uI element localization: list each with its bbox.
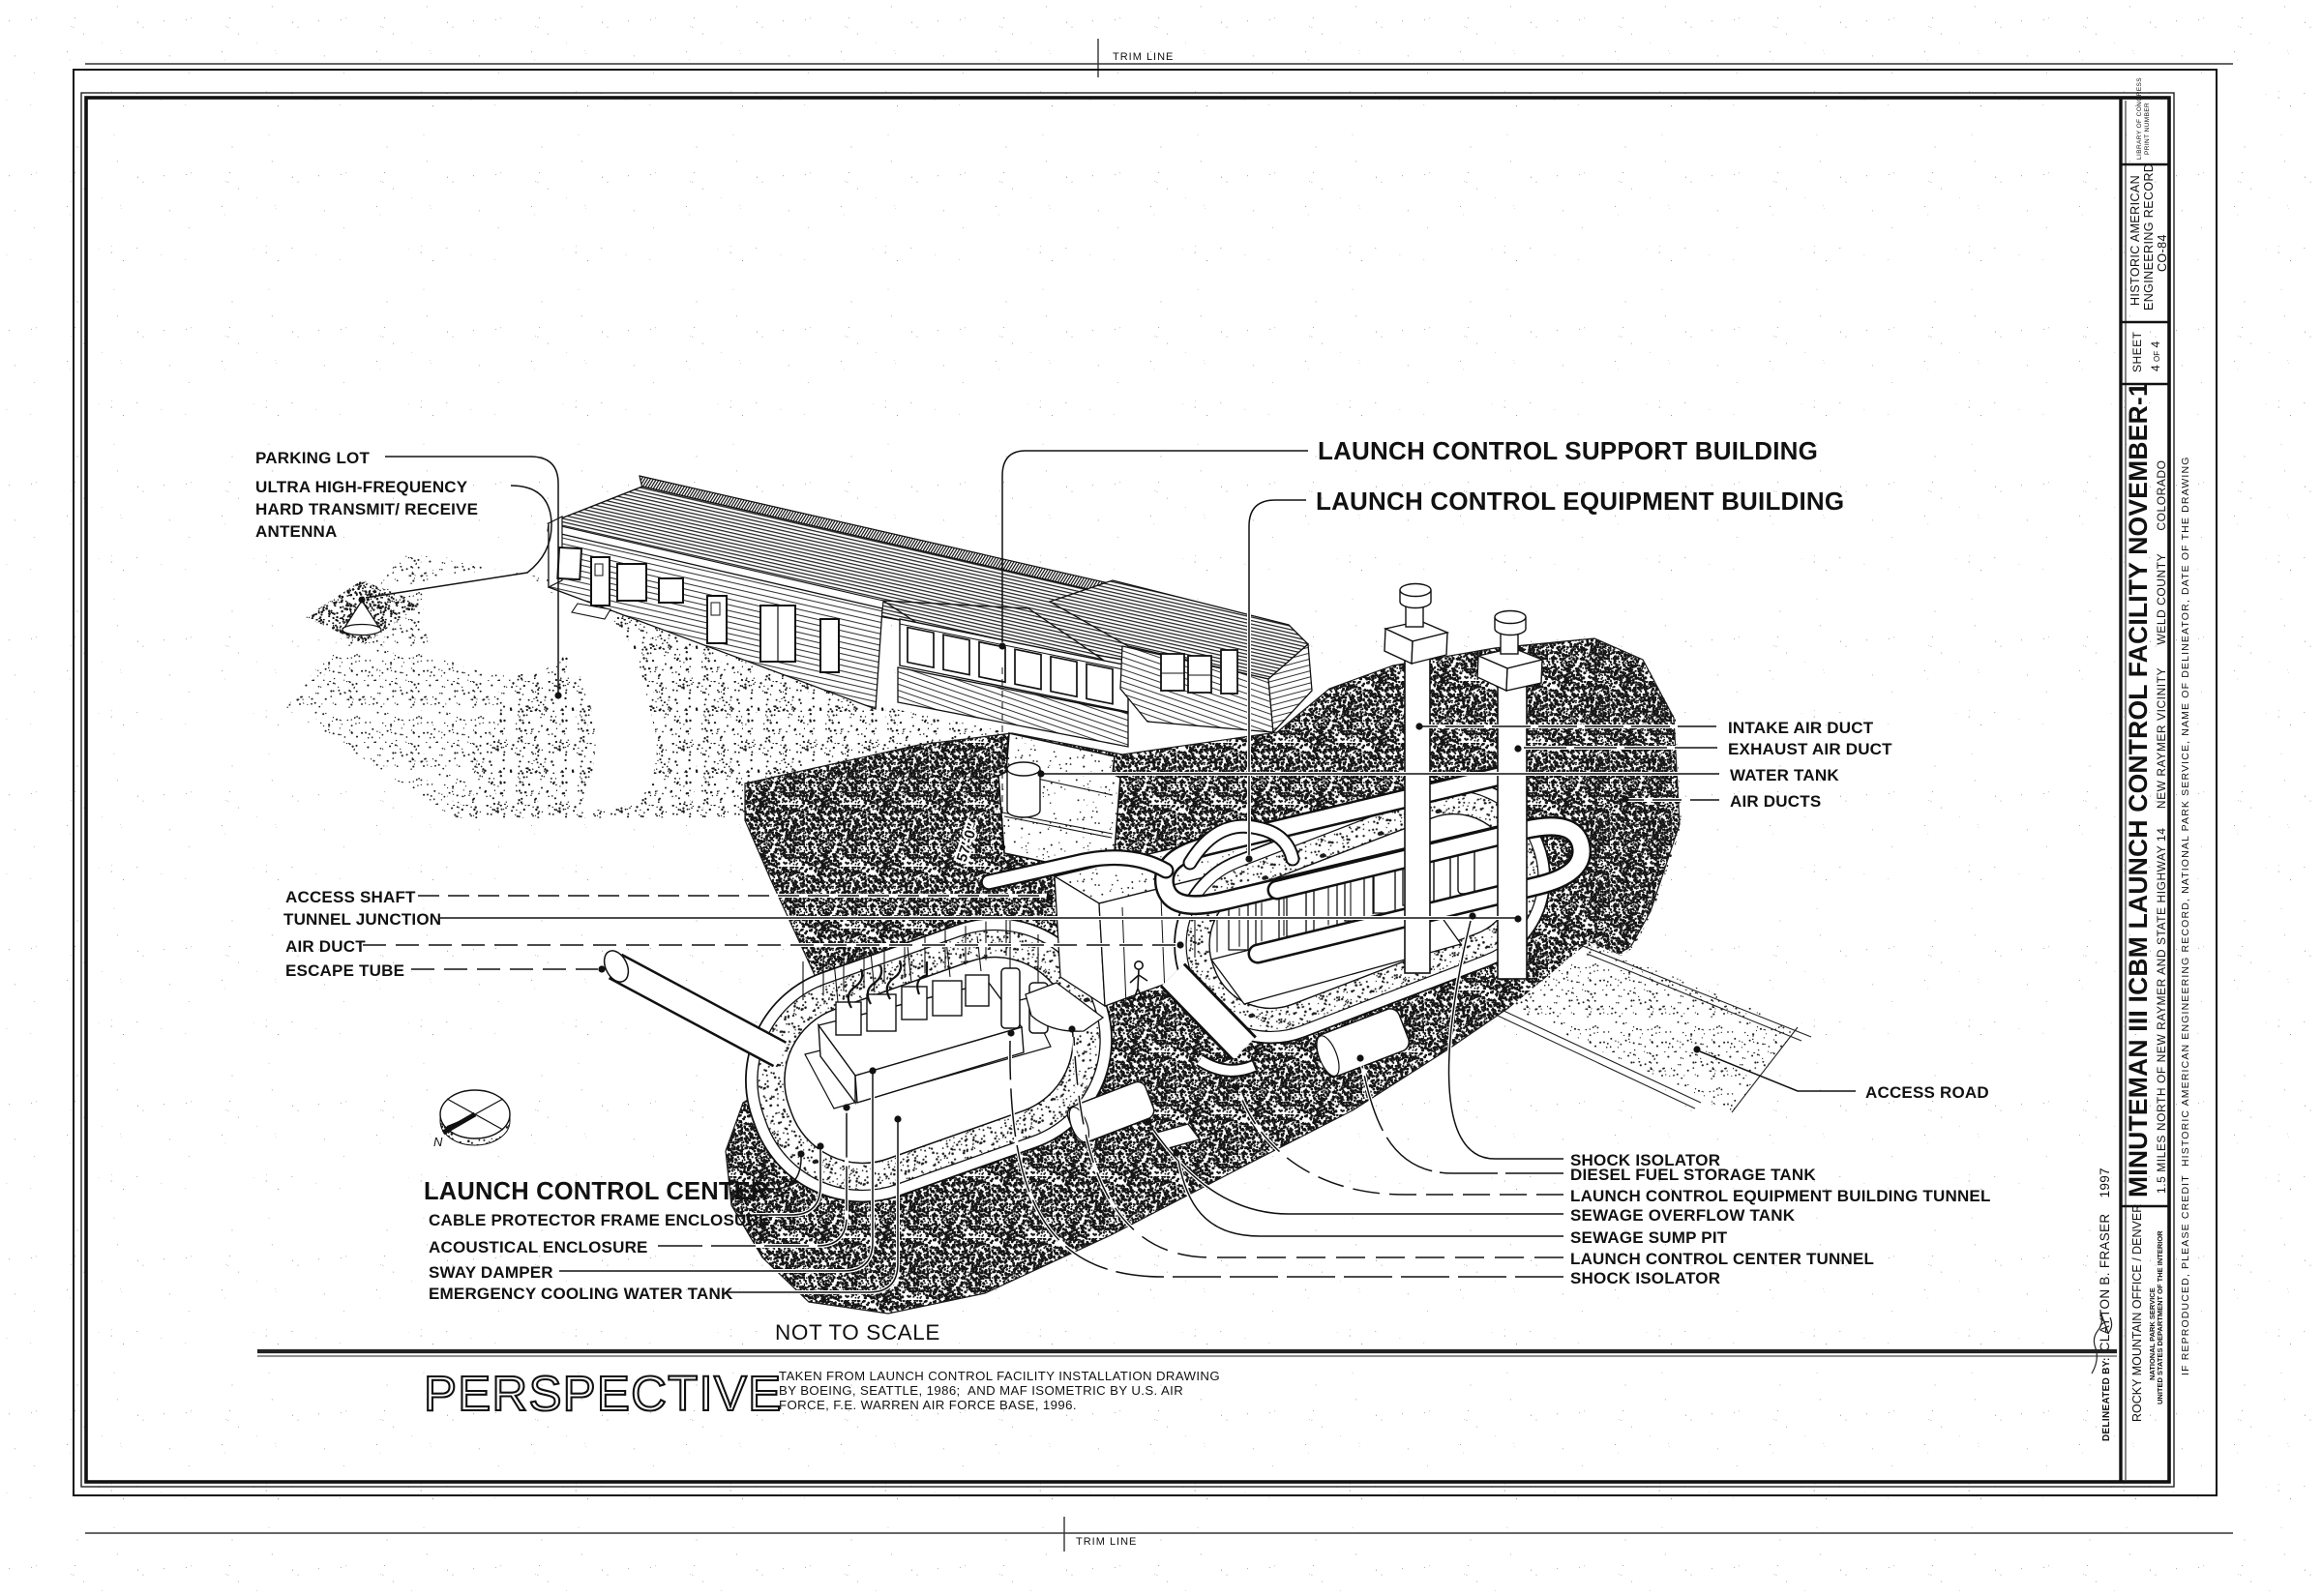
svg-text:NOT TO SCALE: NOT TO SCALE	[775, 1320, 940, 1345]
svg-text:TRIM LINE: TRIM LINE	[1076, 1536, 1137, 1548]
svg-text:1.5 MILES NORTH OF NEW RAYMER: 1.5 MILES NORTH OF NEW RAYMER AND STATE …	[2155, 459, 2168, 1194]
svg-text:DIESEL FUEL STORAGE TANK: DIESEL FUEL STORAGE TANK	[1570, 1166, 1816, 1184]
svg-text:INTAKE AIR DUCT: INTAKE AIR DUCT	[1728, 719, 1874, 737]
svg-text:TUNNEL JUNCTION: TUNNEL JUNCTION	[283, 910, 441, 929]
svg-text:ACOUSTICAL ENCLOSURE: ACOUSTICAL ENCLOSURE	[429, 1238, 648, 1256]
svg-text:FORCE, F.E. WARREN AIR FORCE B: FORCE, F.E. WARREN AIR FORCE BASE, 1996.	[779, 1398, 1077, 1412]
svg-text:LAUNCH CONTROL SUPPORT BUILDIN: LAUNCH CONTROL SUPPORT BUILDING	[1318, 436, 1818, 465]
svg-text:AIR DUCT: AIR DUCT	[285, 937, 366, 956]
svg-text:LIBRARY OF CONGRESS: LIBRARY OF CONGRESS	[2136, 77, 2143, 160]
svg-text:PARKING LOT: PARKING LOT	[255, 449, 370, 467]
svg-text:SEWAGE OVERFLOW TANK: SEWAGE OVERFLOW TANK	[1570, 1206, 1796, 1225]
svg-text:IF REPRODUCED, PLEASE CREDIT: IF REPRODUCED, PLEASE CREDIT HISTORIC AM…	[2180, 456, 2191, 1375]
svg-text:HISTORIC AMERICAN: HISTORIC AMERICAN	[2128, 175, 2142, 306]
svg-text:LAUNCH CONTROL EQUIPMENT BUIL: LAUNCH CONTROL EQUIPMENT BUILDING TUNNEL	[1570, 1187, 1991, 1205]
svg-text:LAUNCH CONTROL CENTER: LAUNCH CONTROL CENTER	[424, 1178, 768, 1205]
svg-text:TRIM LINE: TRIM LINE	[1113, 51, 1174, 63]
svg-text:N: N	[433, 1135, 443, 1149]
svg-text:TAKEN FROM LAUNCH CONTROL FACI: TAKEN FROM LAUNCH CONTROL FACILITY INSTA…	[779, 1369, 1220, 1383]
svg-text:EMERGENCY COOLING WATER TANK: EMERGENCY COOLING WATER TANK	[429, 1285, 733, 1303]
svg-text:ULTRA HIGH-FREQUENCY: ULTRA HIGH-FREQUENCY	[255, 478, 468, 496]
svg-text:ANTENNA: ANTENNA	[255, 522, 338, 541]
svg-text:PRINT NUMBER: PRINT NUMBER	[2144, 103, 2151, 155]
svg-text:ENGINEERING RECORD: ENGINEERING RECORD	[2142, 163, 2156, 310]
svg-text:SHEET: SHEET	[2130, 331, 2144, 372]
svg-text:EXHAUST AIR DUCT: EXHAUST AIR DUCT	[1728, 740, 1892, 758]
svg-text:PERSPECTIVE: PERSPECTIVE	[424, 1366, 782, 1421]
svg-text:CO-84: CO-84	[2156, 234, 2169, 272]
svg-text:SEWAGE SUMP PIT: SEWAGE SUMP PIT	[1570, 1228, 1728, 1247]
svg-text:SWAY DAMPER: SWAY DAMPER	[429, 1263, 553, 1282]
svg-text:AIR DUCTS: AIR DUCTS	[1730, 792, 1821, 811]
svg-text:HARD TRANSMIT/ RECEIVE: HARD TRANSMIT/ RECEIVE	[255, 500, 478, 518]
svg-text:ESCAPE TUBE: ESCAPE TUBE	[285, 961, 404, 980]
svg-text:ACCESS SHAFT: ACCESS SHAFT	[285, 888, 416, 906]
svg-text:LAUNCH CONTROL CENTER TUNNEL: LAUNCH CONTROL CENTER TUNNEL	[1570, 1250, 1874, 1268]
svg-text:BY BOEING, SEATTLE, 1986; AND: BY BOEING, SEATTLE, 1986; AND MAF ISOMET…	[779, 1383, 1183, 1398]
svg-text:SHOCK ISOLATOR: SHOCK ISOLATOR	[1570, 1269, 1720, 1287]
svg-text:LAUNCH CONTROL EQUIPMENT BUILD: LAUNCH CONTROL EQUIPMENT BUILDING	[1316, 487, 1844, 516]
svg-text:MINUTEMAN III ICBM LAUNCH CONT: MINUTEMAN III ICBM LAUNCH CONTROL FACILI…	[2124, 382, 2153, 1197]
svg-text:ROCKY MOUNTAIN OFFICE / DENVER: ROCKY MOUNTAIN OFFICE / DENVER	[2130, 1204, 2144, 1422]
svg-text:CABLE PROTECTOR FRAME ENCLOSUR: CABLE PROTECTOR FRAME ENCLOSURE	[429, 1211, 770, 1229]
svg-text:ACCESS ROAD: ACCESS ROAD	[1865, 1083, 1989, 1102]
svg-text:UNITED STATES DEPARTMENT OF TH: UNITED STATES DEPARTMENT OF THE INTERIOR	[2156, 1230, 2164, 1404]
svg-text:WATER TANK: WATER TANK	[1730, 766, 1839, 784]
